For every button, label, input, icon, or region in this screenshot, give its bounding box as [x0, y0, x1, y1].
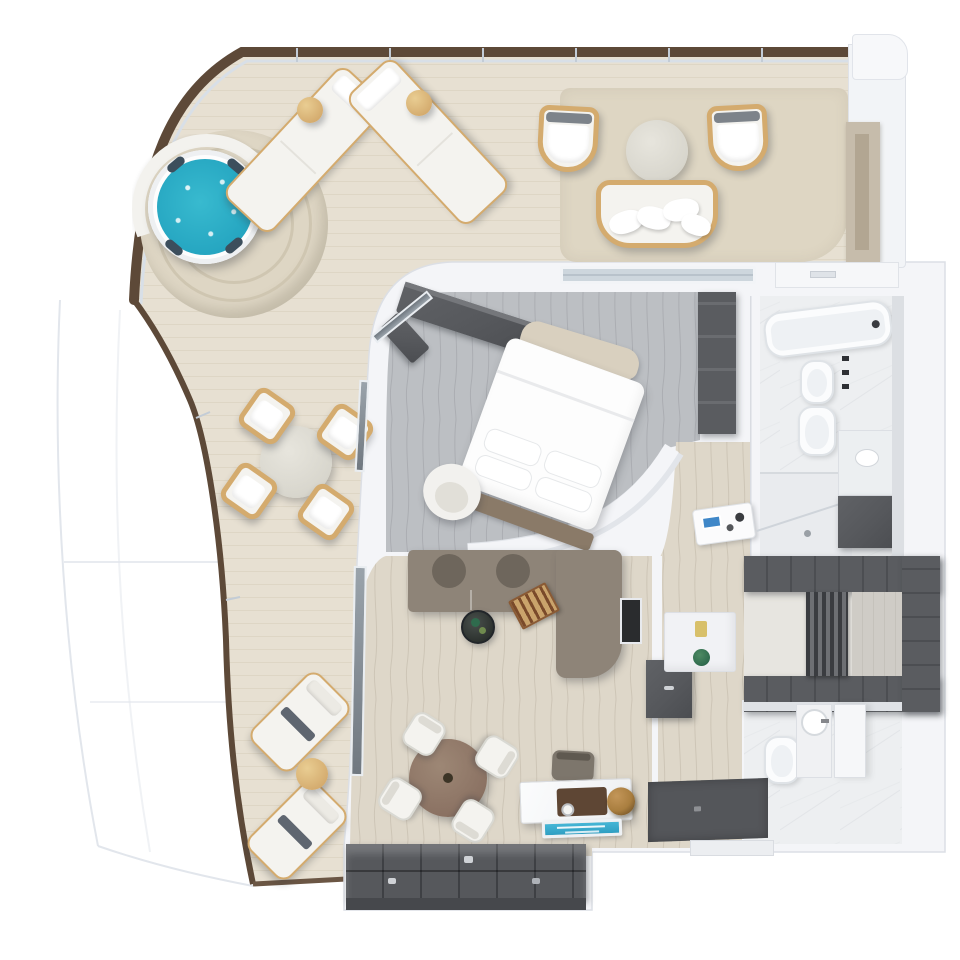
tap-fixture [842, 356, 849, 361]
table-centerpiece [443, 773, 453, 783]
hanging-clothes-rail [806, 592, 848, 676]
marble-wall-band [892, 296, 904, 558]
armchair-back-cushion [714, 111, 760, 123]
storage-wardrobe [346, 844, 586, 900]
living-coffee-table [461, 610, 495, 644]
lounger-seam [280, 140, 316, 174]
vanity-basin [855, 449, 879, 467]
vanity-counter [838, 430, 896, 496]
sofa-seat-split [470, 590, 472, 610]
tap-fixture [842, 384, 849, 389]
toilet-main [798, 406, 836, 456]
wardrobe-item [388, 878, 396, 884]
table-lamp [726, 524, 734, 532]
plaque-text-line [557, 825, 605, 829]
bidet [800, 360, 834, 404]
outdoor-sofa [596, 180, 718, 248]
suite-plaque [542, 819, 623, 839]
round-side-table [297, 97, 323, 123]
plant-decor [479, 627, 486, 634]
bathroom-top-ledge [775, 262, 899, 288]
vanity-niche [664, 612, 736, 672]
closet-wardrobe-right [902, 556, 940, 712]
shower-drain [804, 530, 811, 537]
bar-panel [846, 122, 880, 262]
sofa-chaise [556, 550, 622, 678]
wardrobe-item [532, 878, 540, 884]
wardrobe-item [464, 856, 473, 863]
tablet [701, 514, 723, 530]
chair-cushion [230, 473, 268, 510]
wall-fixtures [842, 356, 850, 416]
terrace-corner-cap [852, 34, 908, 80]
sofa-back-pillow [496, 554, 530, 588]
entry-door-step [690, 840, 774, 856]
sofa-back-pillow [432, 554, 466, 588]
mat-detail [694, 806, 701, 811]
wall-living-hallway [652, 556, 662, 668]
duvet-fold [496, 370, 634, 423]
ledge-handle [810, 271, 836, 278]
entry-mat [648, 778, 768, 842]
decor-box [695, 621, 707, 637]
lounge-chair-throw [276, 814, 313, 851]
sofa-pillow [678, 210, 713, 239]
toilet-seat [805, 415, 829, 449]
desk-chair [551, 750, 595, 782]
minibar-handle [664, 686, 674, 690]
tap-fixture [842, 370, 849, 375]
lounge-chair-throw [279, 706, 316, 743]
round-side-table [406, 90, 432, 116]
wardrobe-shelf-line [346, 870, 586, 872]
table-lamp [735, 512, 745, 522]
armchair-seat-cushion [716, 123, 760, 163]
bar-panel-inset [855, 134, 869, 250]
toilet-seat [771, 745, 793, 777]
guest-counter [796, 704, 832, 778]
wardrobe-base-step [346, 898, 586, 910]
gold-sphere-decor [607, 787, 636, 816]
shower-partition [834, 704, 866, 778]
armchair-back-cushion [546, 112, 592, 124]
vanity-cabinet [838, 496, 896, 548]
closet-inner-floor [852, 592, 902, 676]
armchair-seat [430, 476, 474, 518]
chair-cushion [307, 494, 345, 531]
plant-decor [471, 618, 480, 627]
writing-desk [519, 778, 632, 824]
bathtub-basin [770, 308, 887, 352]
desk-chair-back [556, 752, 590, 761]
bidet-bowl [807, 369, 827, 397]
window-mullion [563, 274, 753, 276]
bedroom-closet [698, 292, 736, 434]
lounger-seam [416, 132, 452, 166]
floor-plan-stage [0, 0, 960, 960]
chair-cushion [248, 398, 286, 435]
round-side-table [296, 758, 328, 790]
plaque-text-line [565, 830, 599, 833]
round-coffee-table [626, 120, 688, 182]
toilet-guest [764, 736, 800, 784]
bedroom-top-window [560, 266, 756, 284]
basin-tap [821, 719, 829, 723]
potted-plant [693, 649, 710, 666]
armchair-seat-cushion [546, 124, 590, 164]
wall-art-niche [620, 598, 642, 644]
